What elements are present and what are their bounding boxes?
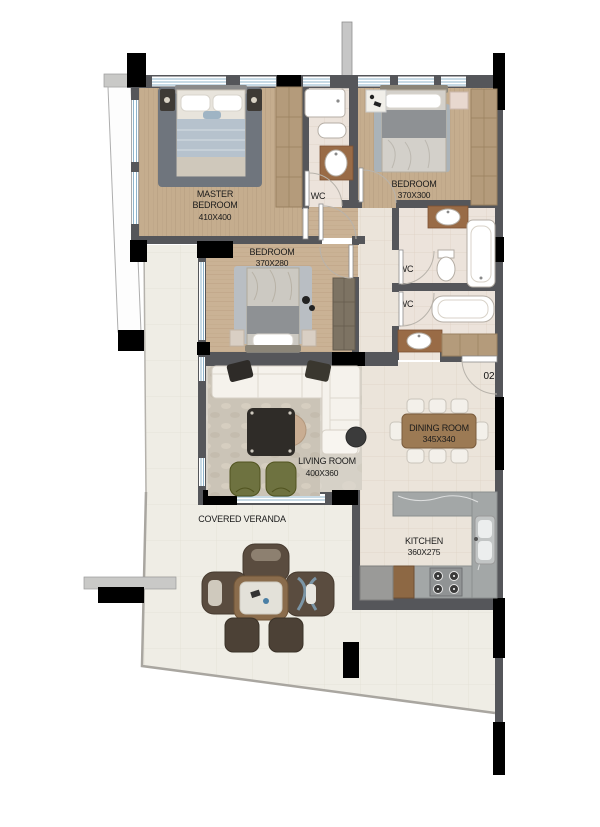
outdoor-table (234, 576, 288, 620)
room-label: DINING ROOM (409, 423, 469, 433)
outdoor-chair (286, 572, 334, 616)
dining-chair (407, 399, 424, 413)
bathtub (467, 220, 495, 287)
room-label: BEDROOM (249, 247, 294, 257)
column (277, 75, 301, 88)
master-bed (175, 85, 247, 176)
kitchen-sink (474, 516, 495, 564)
dining-chair (429, 449, 446, 463)
stool (346, 427, 366, 447)
window (199, 458, 205, 486)
floor-plan-image: MASTER BEDROOM 410X400 WC (0, 0, 600, 827)
window (132, 100, 139, 162)
room-dims: 410X400 (199, 212, 232, 222)
column (332, 490, 358, 505)
column (130, 240, 147, 262)
wardrobe (276, 87, 302, 207)
column (98, 587, 144, 603)
kitchen-cabinet-gray (360, 566, 393, 600)
wall-kitchen-west (352, 490, 360, 600)
door-leaf-master (303, 208, 308, 239)
outdoor-stool (269, 618, 303, 652)
shower-tray (305, 89, 345, 117)
dining-chair (390, 422, 403, 440)
column (493, 598, 505, 658)
room-label: BEDROOM (192, 200, 237, 210)
drain (336, 99, 339, 102)
floor-hall (309, 207, 358, 238)
slippers (302, 296, 310, 304)
door-leaf-wc-top (305, 171, 309, 206)
room-label: LIVING ROOM (298, 456, 356, 466)
dining-chair (451, 449, 468, 463)
toilet (318, 123, 346, 138)
nightstand (160, 89, 175, 111)
door-leaf-bedroom-mid (349, 245, 353, 278)
kitchen-cabinet-wood (393, 566, 414, 598)
wall-living-north (198, 352, 398, 366)
nightstand (230, 330, 244, 346)
column (343, 642, 359, 678)
toilet (437, 250, 455, 281)
outdoor-stool (225, 618, 259, 652)
washbasin (320, 146, 353, 180)
window (303, 77, 330, 87)
ledge-top-left (104, 74, 128, 87)
window (199, 357, 205, 381)
room-label: BEDROOM (391, 179, 436, 189)
column (127, 53, 146, 87)
nightstand (302, 330, 316, 346)
floor-plan: MASTER BEDROOM 410X400 WC (0, 0, 600, 827)
stove (430, 568, 462, 596)
desk (366, 90, 386, 112)
door-leaf-wc-upper (399, 250, 403, 284)
bed (245, 268, 301, 352)
column (493, 722, 505, 775)
column (495, 237, 504, 262)
unit-number: 02 (483, 371, 495, 382)
washbasin (428, 206, 468, 228)
room-dims: 345X340 (423, 434, 456, 444)
door-leaf-hall (319, 204, 323, 240)
window (132, 172, 139, 224)
coffee-table (247, 408, 295, 456)
slippers (309, 305, 315, 311)
dining-chair (429, 399, 446, 413)
wall-corridor-east (392, 208, 399, 250)
column (118, 330, 144, 351)
dining-chair (451, 399, 468, 413)
room-label: KITCHEN (405, 536, 443, 546)
door-leaf-bedroom-top (359, 168, 363, 202)
nightstand (247, 89, 262, 111)
dining-chair (407, 449, 424, 463)
shower-tub (432, 296, 494, 322)
bed (380, 85, 448, 172)
nightstand (450, 92, 468, 109)
armchair (230, 462, 260, 496)
room-label: WC (311, 191, 326, 201)
window (199, 262, 205, 340)
room-dims: 400X360 (306, 468, 339, 478)
door-leaf-wc-lower (399, 292, 403, 326)
wardrobe (471, 89, 497, 205)
column (197, 241, 233, 258)
armchair (266, 462, 296, 496)
wardrobe (333, 278, 355, 350)
room-label: MASTER (197, 189, 234, 199)
entry-wardrobe (442, 334, 497, 356)
floor-balcony-strip (144, 245, 198, 492)
room-label: COVERED VERANDA (198, 514, 286, 524)
washbasin (398, 330, 442, 352)
column (197, 342, 210, 355)
dining-chair (475, 422, 488, 440)
room-dims: 370X300 (398, 190, 431, 200)
room-dims: 370X280 (256, 258, 289, 268)
room-dims: 360X275 (408, 547, 441, 557)
column (495, 397, 504, 470)
window (240, 77, 276, 87)
entry-door-leaf (462, 356, 497, 362)
column (332, 352, 365, 366)
